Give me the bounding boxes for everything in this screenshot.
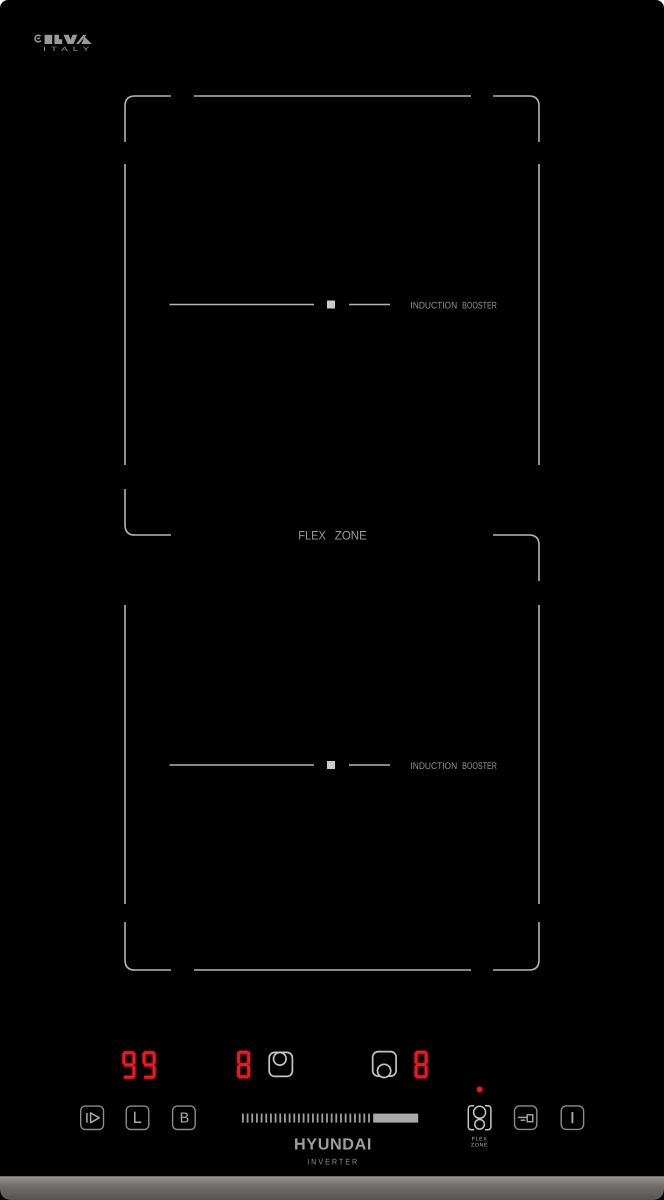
svg-text:INDUCTION: INDUCTION [410, 761, 457, 772]
svg-text:B: B [180, 1111, 190, 1127]
svg-text:ZONE: ZONE [471, 1142, 488, 1148]
svg-text:BOOSTER: BOOSTER [462, 300, 497, 311]
svg-text:ITALY: ITALY [43, 46, 94, 53]
svg-text:INDUCTION: INDUCTION [410, 300, 457, 311]
svg-text:INVERTER: INVERTER [307, 1157, 359, 1166]
svg-text:FLEX: FLEX [298, 528, 326, 542]
svg-text:BOOSTER: BOOSTER [462, 761, 497, 772]
svg-text:HYUNDAI: HYUNDAI [294, 1136, 372, 1154]
svg-text:ZONE: ZONE [335, 528, 367, 542]
